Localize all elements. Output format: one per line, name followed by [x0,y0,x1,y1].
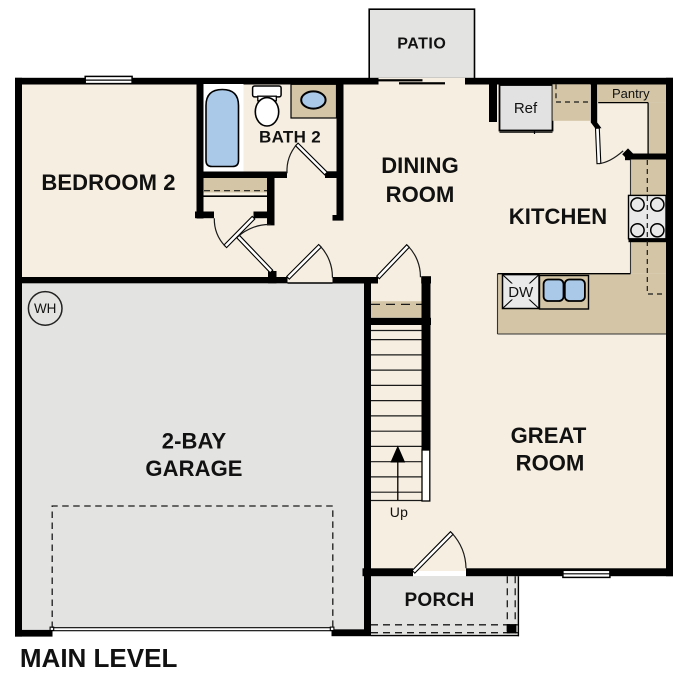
svg-text:ROOM: ROOM [516,451,585,476]
svg-text:GARAGE: GARAGE [145,456,242,481]
svg-text:DINING: DINING [381,153,459,178]
svg-text:GREAT: GREAT [511,423,587,448]
svg-text:BEDROOM 2: BEDROOM 2 [41,170,175,195]
svg-text:PORCH: PORCH [404,590,474,611]
svg-text:Ref: Ref [514,100,538,117]
svg-text:2-BAY: 2-BAY [162,429,227,454]
svg-text:DW: DW [508,284,534,301]
svg-text:WH: WH [34,301,57,316]
svg-text:MAIN LEVEL: MAIN LEVEL [20,643,178,673]
svg-text:Pantry: Pantry [612,86,650,101]
svg-text:PATIO: PATIO [397,36,446,53]
svg-text:BATH 2: BATH 2 [259,128,321,147]
svg-text:KITCHEN: KITCHEN [509,204,607,229]
svg-text:ROOM: ROOM [386,182,455,207]
svg-text:Up: Up [390,504,409,520]
